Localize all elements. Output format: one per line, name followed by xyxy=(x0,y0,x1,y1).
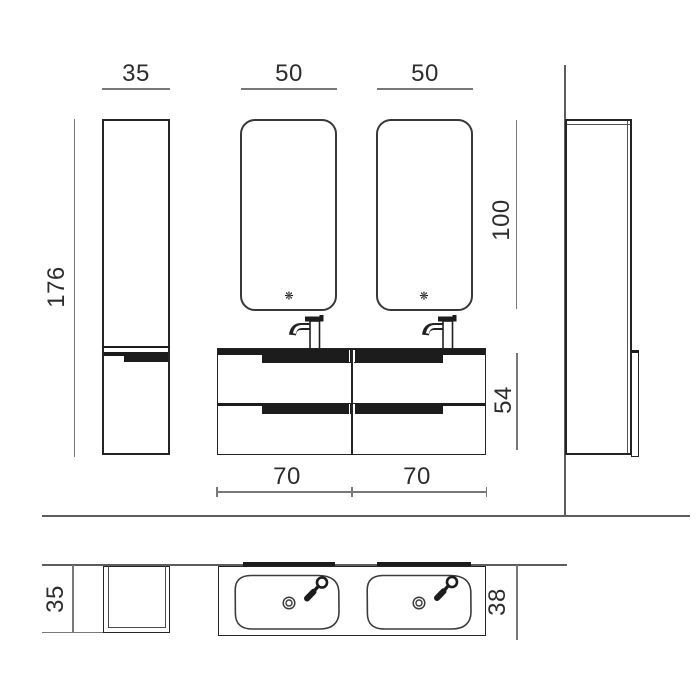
dim-line-mirror-height xyxy=(516,120,518,309)
faucet-left-icon xyxy=(286,315,326,351)
vanity-handle-top-left xyxy=(262,355,352,363)
vanity-center-divider xyxy=(351,349,353,454)
dim-column-width: 35 xyxy=(122,62,150,86)
vanity-technical-drawing: ❋ ❋ xyxy=(0,0,700,700)
vanity-handle-top-right xyxy=(354,355,443,363)
dim-line-vanity-height xyxy=(516,353,518,450)
mirror-right-sensor-icon: ❋ xyxy=(419,292,428,303)
dim-vanity-left-width: 70 xyxy=(273,465,301,489)
dim-line-column-height xyxy=(74,119,76,457)
tall-column-division-line xyxy=(102,346,170,348)
dim-line-column-depth xyxy=(72,565,74,633)
vanity-side-edge xyxy=(631,350,639,457)
tall-column-front xyxy=(102,119,170,455)
divider-joint-mark xyxy=(349,404,351,415)
dim-line-column-width xyxy=(102,88,170,90)
tall-column-plan xyxy=(103,566,170,633)
dim-tick xyxy=(351,487,353,497)
vanity-unit-front xyxy=(217,348,486,455)
basin-right-plan xyxy=(362,572,477,633)
dim-column-depth: 35 xyxy=(44,585,68,613)
dim-line-mirror-right-width xyxy=(377,88,473,90)
mirror-right xyxy=(376,119,473,311)
tall-column-plan-inner-line xyxy=(108,566,166,628)
divider-joint-mark xyxy=(349,350,351,362)
dim-tick xyxy=(486,487,488,497)
side-cabinet-door-line xyxy=(627,121,628,453)
side-cabinet-top-detail-line xyxy=(567,124,630,125)
mirror-right-plan-line xyxy=(377,562,471,567)
vanity-side-countertop-cap xyxy=(631,350,639,354)
dim-tick xyxy=(216,487,218,497)
faucet-right-icon xyxy=(419,315,459,351)
dim-mirror-left-width: 50 xyxy=(275,62,303,86)
dim-column-height: 176 xyxy=(45,266,69,308)
dim-ext-column-depth xyxy=(42,632,103,633)
mirror-left-plan-line xyxy=(243,562,335,567)
dim-vanity-right-width: 70 xyxy=(403,465,431,489)
dim-mirror-height: 100 xyxy=(490,199,514,241)
dim-line-mirror-left-width xyxy=(241,88,337,90)
tall-column-handle-groove xyxy=(124,352,168,362)
basin-left-plan xyxy=(230,572,345,633)
vanity-handle-bottom-right xyxy=(354,406,443,414)
vanity-handle-bottom-left xyxy=(262,406,352,414)
view-separator-line xyxy=(42,515,690,517)
divider-joint-mark xyxy=(353,350,355,362)
divider-joint-mark xyxy=(353,404,355,415)
dim-mirror-right-width: 50 xyxy=(411,62,439,86)
dim-vanity-height: 54 xyxy=(492,386,516,414)
dim-vanity-depth: 38 xyxy=(486,588,510,616)
mirror-left xyxy=(240,119,337,311)
mirror-left-sensor-icon: ❋ xyxy=(284,292,293,303)
dim-line-vanity-depth xyxy=(516,565,518,640)
tall-column-handle-groove-thin xyxy=(104,352,125,356)
tall-column-side xyxy=(565,119,632,455)
